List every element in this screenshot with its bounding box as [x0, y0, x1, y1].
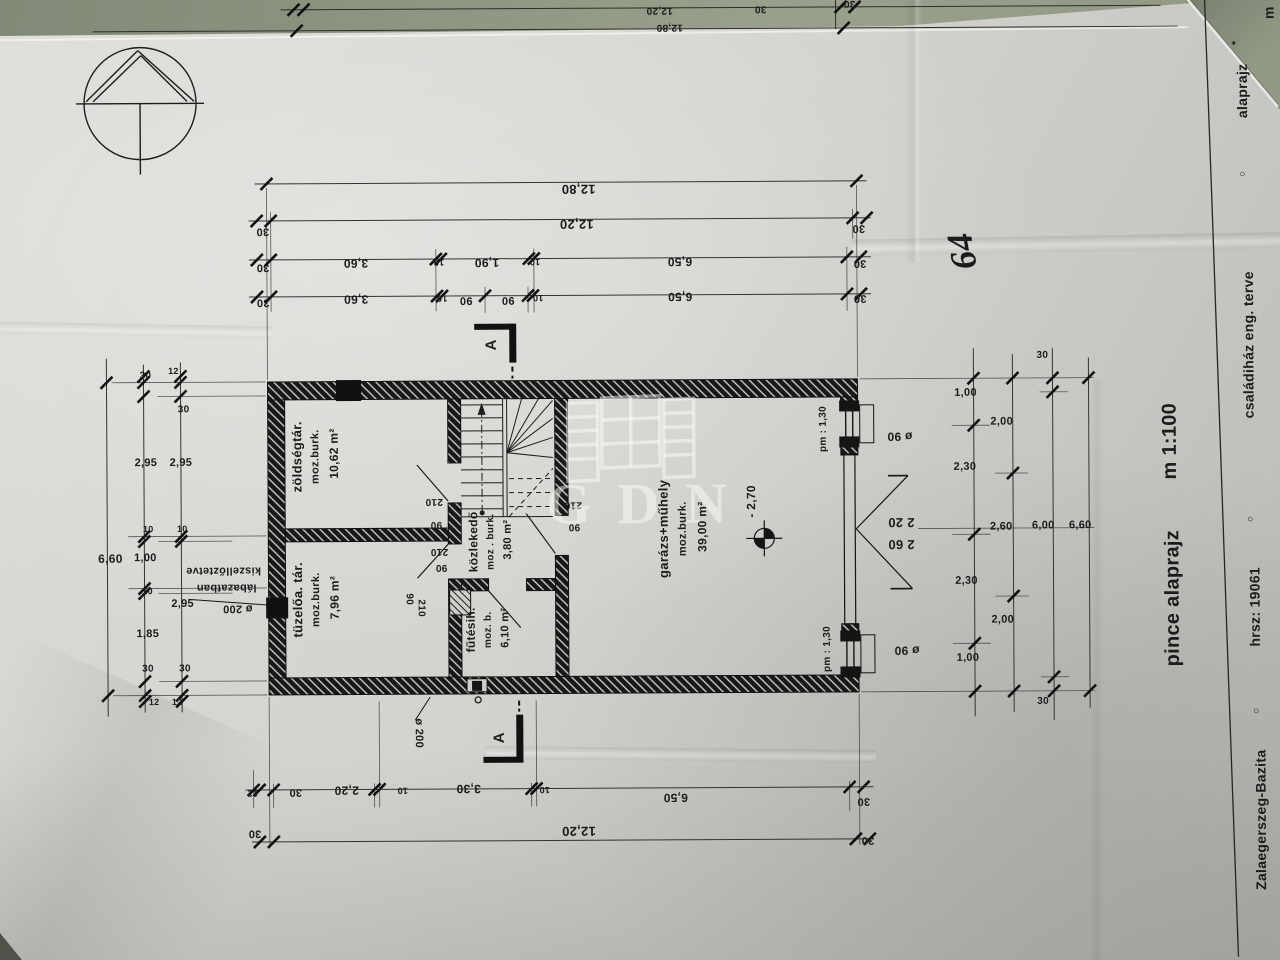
door-210-b: 210 — [431, 546, 449, 556]
dim-left-6-60: 6,60 — [98, 553, 123, 565]
dim-top-3-60-b: 3,60 — [344, 293, 369, 305]
dim-top-30-r2: 30 — [852, 222, 865, 233]
dim-left-12-c: 12 — [172, 698, 183, 707]
room-garazs-area: 39,00 m² — [696, 501, 708, 551]
dim-left-1-00: 1,00 — [134, 553, 157, 564]
room-kozlekedo-area: 3,80 m² — [503, 520, 514, 560]
section-letter-top: A — [484, 339, 499, 350]
dim-right-2-00-b: 2,00 — [991, 615, 1014, 626]
dim-bot-30-r2: 30 — [861, 834, 874, 845]
door-210-a: 210 — [425, 496, 443, 506]
dim-left-12-a: 12 — [149, 698, 160, 707]
bg-dim-30-b: 30 — [844, 0, 856, 8]
room-zoldsegtar-name: zöldségtár. — [290, 421, 303, 492]
bg-dim-12-80: 12,80 — [656, 22, 683, 32]
dim-left-2-95-a: 2,95 — [135, 458, 158, 469]
room-zoldsegtar-area: 10,62 m² — [328, 428, 340, 478]
parapet-1-30-a: pm : 1,30 — [819, 406, 829, 452]
dim-right-2-00-a: 2,00 — [990, 417, 1013, 428]
dim-bot-30-l1: 30 — [289, 786, 302, 797]
room-futesih-finish: moz. b. — [484, 611, 494, 648]
dim-top-30-l4: 30 — [257, 296, 270, 307]
dim-top-6-50-a: 6,50 — [668, 256, 693, 268]
vent-dia-90-a: ø 90 — [887, 431, 912, 443]
dim-bot-2-20: 2,20 — [334, 784, 359, 796]
dim-right-1-00-b: 1,00 — [957, 653, 980, 664]
dim-top-10-d: 10 — [533, 293, 544, 302]
dim-bot-12: 12 — [247, 789, 258, 798]
note-dia-200-b: ø 200 — [413, 718, 424, 748]
strip-next-sheet-m: m — [1262, 6, 1276, 19]
room-futesih-area: 6,10 m² — [500, 608, 511, 648]
sheet-title: pince alaprajz — [1162, 530, 1183, 667]
level-value: - 2,70 — [745, 485, 757, 518]
door-90-a: 90 — [430, 519, 442, 529]
dim-top-1-90: 1,90 — [475, 257, 500, 269]
drawing-layer: 12,2012,80303012,803012,2030303,60101,90… — [0, 0, 1280, 960]
strip-location: Zalaegerszeg-Bazita — [1253, 750, 1268, 890]
strip-project: családiház eng. terve — [1241, 271, 1256, 418]
bg-dim-30-a: 30 — [755, 3, 767, 13]
stairs — [461, 398, 554, 516]
dim-bot-10-a: 10 — [397, 786, 408, 795]
strip-sep-3: ○ — [1238, 171, 1248, 177]
strip-parcel: hrsz: 19061 — [1247, 567, 1261, 647]
dimension-lines — [105, 180, 1090, 843]
dim-left-2-95-b: 2,95 — [170, 458, 193, 469]
dim-top-10-c: 10 — [437, 294, 448, 303]
strip-sheet: alaprajz — [1235, 64, 1249, 119]
note-labazatban: lábazatban — [197, 582, 257, 593]
dim-top-30-l3: 30 — [256, 261, 269, 272]
note-dia-200-a: ø 200 — [223, 603, 253, 614]
dim-left-12-b: 12 — [168, 367, 179, 376]
dim-bot-6-50: 6,50 — [663, 792, 688, 804]
door-210-d: 210 — [416, 599, 426, 617]
dim-left-30-b: 30 — [142, 665, 154, 675]
room-tuzeloatar-name: tüzelőa. tár. — [291, 562, 304, 637]
dim-left-2-95-c: 2,95 — [171, 599, 194, 610]
dim-right-2-30-a: 2,30 — [954, 462, 977, 473]
extension-lines — [110, 184, 1095, 849]
dim-left-10-c: 10 — [177, 525, 188, 534]
note-kiszelloztetve: kiszellőztetve — [186, 564, 261, 575]
vent-dia-90-b: ø 90 — [894, 645, 919, 657]
strip-footnote: * — [1231, 41, 1242, 46]
dim-right-30-b: 30 — [1037, 697, 1049, 707]
garagedoor-width: 2 20 — [888, 516, 915, 529]
room-zoldsegtar-finish: moz.burk. — [310, 429, 321, 484]
dim-bot-30-l2: 30 — [248, 827, 261, 838]
north-arrow-icon — [76, 47, 205, 175]
dim-top-3-60-a: 3,60 — [344, 257, 369, 269]
dim-right-6-00: 6,00 — [1032, 520, 1055, 531]
floor-plan-drawing — [0, 0, 1280, 960]
dim-bot-10-b: 10 — [539, 785, 550, 794]
dim-top-10-b: 10 — [530, 257, 541, 266]
dim-right-1-00-a: 1,00 — [954, 388, 977, 399]
bg-dim-12-20: 12,20 — [646, 5, 673, 15]
door-210-c: 210 — [564, 499, 582, 509]
strip-sep-2: ○ — [1246, 516, 1256, 522]
section-letter-bottom: A — [492, 732, 507, 743]
dim-left-30-a: 30 — [140, 372, 152, 382]
dim-right-6-60: 6,60 — [1069, 520, 1092, 531]
door-90-b: 90 — [436, 562, 448, 572]
dim-right-2-60: 2,60 — [990, 522, 1013, 533]
dim-bot-3-30: 3,30 — [456, 783, 481, 795]
dim-left-30-c: 30 — [178, 405, 190, 415]
dim-top-12-20: 12,20 — [560, 218, 594, 231]
dim-left-10-b: 10 — [142, 587, 153, 596]
parapet-1-30-b: pm : 1,30 — [823, 626, 833, 672]
dim-top-30-r3: 30 — [853, 257, 866, 268]
dim-bot-30-r1: 30 — [857, 795, 870, 806]
dim-left-1-85: 1,85 — [136, 629, 159, 640]
dim-top-30-l2: 30 — [256, 225, 269, 236]
dimension-ticks — [99, 0, 1097, 849]
room-futesih-name: fűtésih. — [465, 607, 477, 652]
room-tuzeloatar-area: 7,96 m² — [328, 576, 340, 620]
photographed-floorplan-sheet: 12,2012,80303012,803012,2030303,60101,90… — [0, 0, 1280, 960]
strip-sep-1: ○ — [1252, 708, 1262, 714]
garagedoor-height: 2 60 — [888, 538, 915, 551]
room-kozlekedo-finish: moz . burk. — [486, 514, 496, 570]
room-tuzeloatar-finish: moz.burk. — [311, 572, 322, 627]
sheet-scale: m 1:100 — [1160, 403, 1180, 480]
room-garazs-finish: moz.burk. — [678, 501, 689, 556]
dim-top-6-50-b: 6,50 — [668, 291, 693, 303]
door-90-c: 90 — [568, 521, 580, 531]
dim-bot-12-20: 12,20 — [562, 825, 596, 838]
dim-top-10-a: 10 — [434, 258, 445, 267]
background-sheet-lines — [92, 0, 1177, 33]
door-90-d: 90 — [404, 593, 414, 605]
sheet-edges — [0, 0, 1280, 960]
dim-top-30-r4: 30 — [854, 292, 867, 303]
level-symbol — [746, 520, 782, 556]
dim-right-30-a: 30 — [1036, 351, 1048, 361]
room-kozlekedo-name: közlekedő — [467, 511, 479, 572]
dim-right-2-30-b: 2,30 — [955, 576, 978, 587]
handwritten-64: 64 — [941, 230, 983, 272]
dim-left-30-d: 30 — [179, 664, 191, 674]
dim-top-12-80: 12,80 — [561, 183, 595, 196]
dim-left-10-a: 10 — [143, 525, 154, 534]
room-garazs-name: garázs+műhely — [656, 480, 670, 578]
dim-top-90-b: 90 — [502, 294, 515, 305]
dim-top-90-a: 90 — [460, 294, 473, 305]
